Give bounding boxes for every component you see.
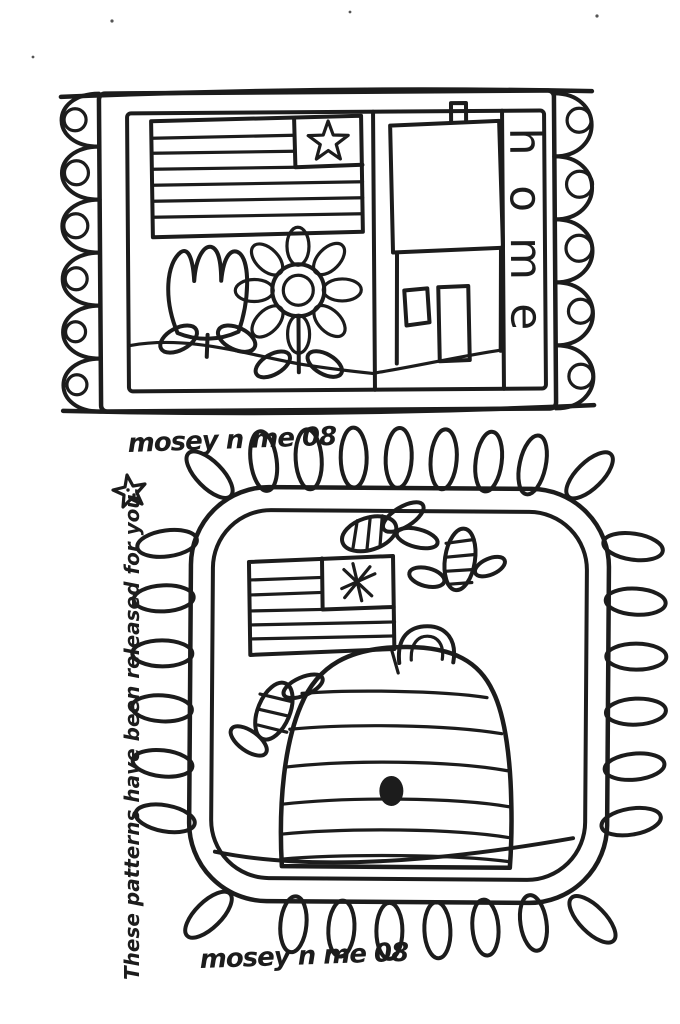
home-letter-m: m [500,237,551,280]
scan-specks [32,11,599,59]
side-note-text: These patterns have been released for yo… [120,487,144,980]
beehive-motif [281,625,513,868]
coloring-page: h o m e mosey n me 08 These patterns hav… [0,0,680,1024]
flag-star [308,121,348,159]
right-scallop-border [554,93,594,408]
home-letter-e: e [500,303,551,330]
artist-signature-bottom: mosey n me 08 [199,938,409,975]
flag-stripes [152,135,363,217]
home-letter-o: o [500,185,551,212]
left-scallop-border [61,94,101,412]
artist-signature-top: mosey n me 08 [127,422,337,459]
house-motif [390,103,504,364]
folk-art-patterns-artwork: h o m e mosey n me 08 These patterns hav… [0,0,680,1024]
bee-wing [395,524,440,552]
ground-line [131,341,375,375]
bee-wing [472,553,508,580]
flag-motif [151,116,363,237]
flower-center [272,264,324,316]
house-window [404,288,429,325]
bee-right [407,526,508,592]
flag-field [151,116,363,237]
house-door [438,286,470,361]
flower-leaf [251,346,294,382]
home-letter-h: h [499,128,550,156]
hive-handle [399,626,454,663]
house-roof-block [390,121,503,253]
cell-divider-left [373,112,375,390]
flower-motif [235,227,362,383]
ground-line [215,836,573,864]
bee-top [337,496,440,558]
flag-star-asterisk [342,564,375,601]
bee-wing [407,564,446,590]
hive-entrance-hole [379,776,403,806]
beehive-rug-drawing [130,426,669,961]
house-wall [396,253,398,364]
home-rug-drawing: h o m e [61,88,594,414]
flag-motif-bottom [248,555,399,673]
hive-stripes [281,690,511,861]
tulip-leaf [156,320,202,358]
